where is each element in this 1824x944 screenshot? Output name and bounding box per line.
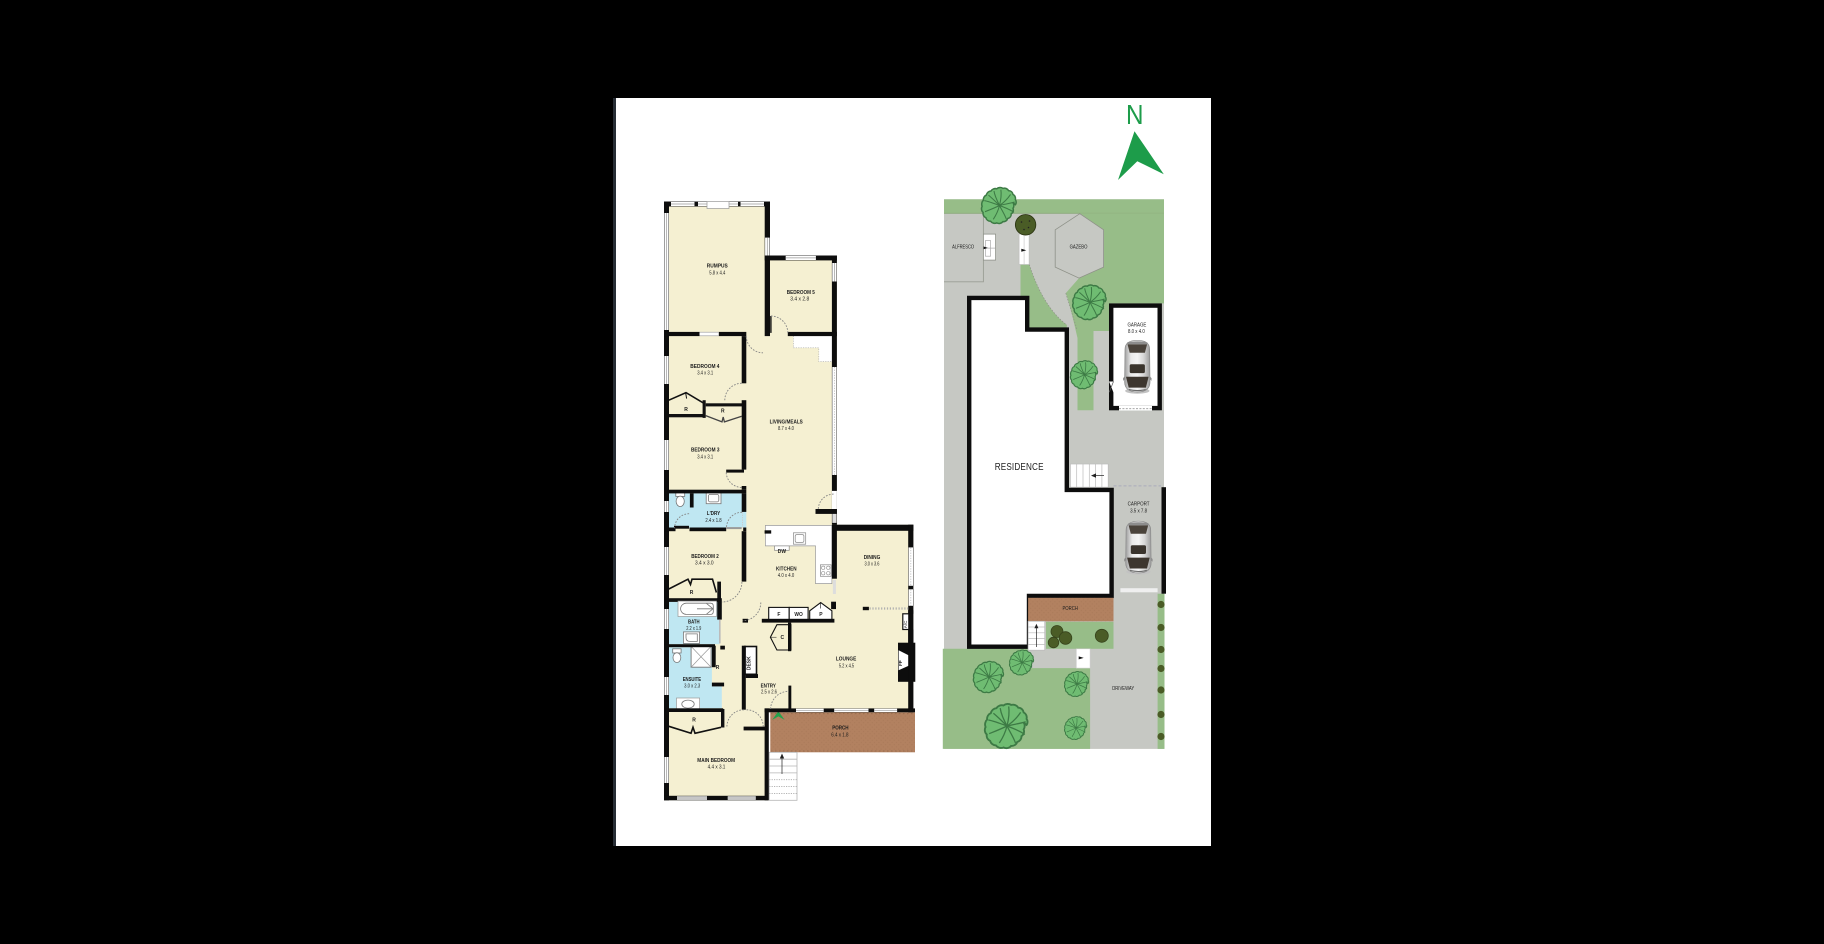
svg-text:RESIDENCE: RESIDENCE [995,462,1044,473]
svg-text:A/C: A/C [903,620,908,628]
svg-text:3.5 x 7.8: 3.5 x 7.8 [1130,508,1147,514]
svg-text:3.4 x 2.8: 3.4 x 2.8 [790,296,809,302]
svg-text:DINING: DINING [864,555,881,561]
svg-text:BEDROOM 2: BEDROOM 2 [691,554,719,560]
svg-text:C: C [780,635,784,641]
svg-text:ALFRESCO: ALFRESCO [952,245,974,251]
svg-text:3.0 x 3.6: 3.0 x 3.6 [865,562,880,568]
svg-text:R: R [721,408,725,414]
svg-text:ENSUITE: ENSUITE [683,677,702,683]
svg-text:2.5 x 2.6: 2.5 x 2.6 [761,689,777,695]
svg-text:2.2 x 1.9: 2.2 x 1.9 [686,626,701,632]
svg-text:GAZEBO: GAZEBO [1070,244,1088,250]
svg-text:2.4 x 1.8: 2.4 x 1.8 [705,518,721,524]
svg-text:BEDROOM 5: BEDROOM 5 [787,290,815,296]
svg-text:3.4 x 3.1: 3.4 x 3.1 [697,370,713,376]
svg-text:4.0 x 4.0: 4.0 x 4.0 [778,573,794,579]
svg-text:BEDROOM 3: BEDROOM 3 [691,448,720,454]
svg-text:R: R [690,590,694,596]
svg-text:BATH: BATH [688,619,700,625]
svg-text:CARPORT: CARPORT [1128,502,1151,508]
svg-text:5.2 x 4.5: 5.2 x 4.5 [839,663,854,669]
svg-text:BEDROOM 4: BEDROOM 4 [690,364,720,370]
svg-text:PORCH: PORCH [1062,606,1078,612]
svg-text:PORCH: PORCH [832,725,848,731]
svg-text:3.0 x 2.3: 3.0 x 2.3 [684,684,700,690]
svg-text:4.4 x 3.1: 4.4 x 3.1 [708,764,726,770]
svg-text:LIVING/MEALS: LIVING/MEALS [770,420,803,426]
svg-text:R: R [692,717,696,723]
svg-text:3.4 x 3.0: 3.4 x 3.0 [695,561,714,567]
svg-text:F: F [777,612,780,618]
svg-text:5.8 x 4.4: 5.8 x 4.4 [709,270,725,276]
svg-text:GARAGE: GARAGE [1127,322,1146,328]
svg-text:R: R [716,665,720,671]
svg-text:KITCHEN: KITCHEN [776,567,797,573]
svg-text:N: N [1126,99,1144,130]
svg-text:FP: FP [898,660,903,666]
svg-text:MAIN BEDROOM: MAIN BEDROOM [697,758,735,764]
svg-text:DESK: DESK [747,656,753,670]
svg-text:DW: DW [778,549,786,555]
svg-text:8.7 x 4.0: 8.7 x 4.0 [778,426,794,432]
svg-text:8.0 x 4.0: 8.0 x 4.0 [1128,329,1145,335]
svg-text:L'DRY: L'DRY [707,511,721,517]
svg-text:3.4 x 3.1: 3.4 x 3.1 [697,454,713,460]
svg-text:WO: WO [794,612,803,618]
svg-text:6.4 x 1.8: 6.4 x 1.8 [831,733,848,739]
svg-text:LOUNGE: LOUNGE [836,657,857,663]
svg-text:DRIVEWAY: DRIVEWAY [1112,686,1134,692]
svg-text:RUMPUS: RUMPUS [707,263,728,269]
svg-text:R: R [684,407,688,413]
